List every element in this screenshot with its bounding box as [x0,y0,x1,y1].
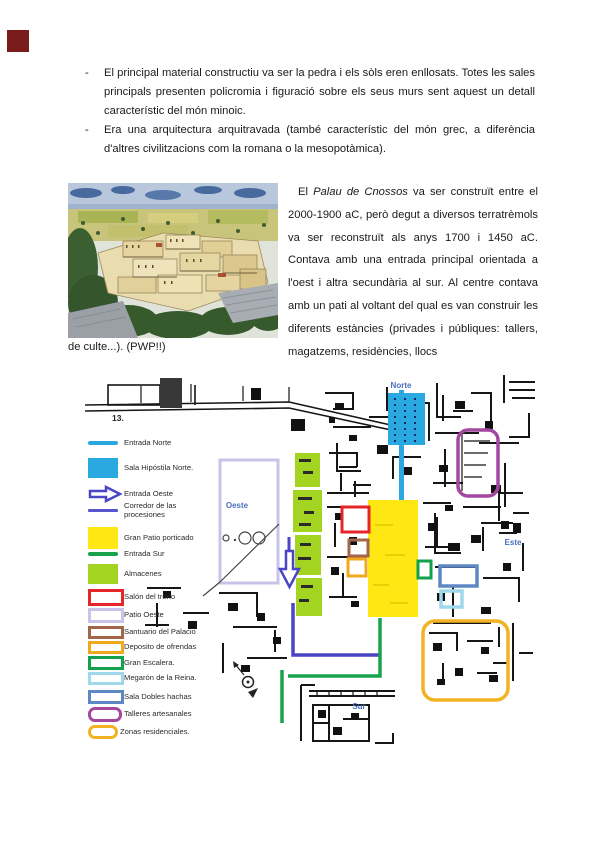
salon-del-trono-area [342,507,369,532]
entrada-norte-swatch [88,441,118,445]
legend-item: Gran Escalera. [88,656,238,670]
talleres-swatch [88,707,122,722]
legend-item: Zonas residenciales. [88,725,238,739]
legend-item: Corredor de las procesiones [88,502,238,519]
patio-oeste-swatch [88,608,124,623]
deposito-swatch [88,641,124,654]
legend-item: Almacenes [88,564,238,584]
map-figure: Norte Este Sur Oeste 13. Entrada Norte S… [85,375,535,765]
list-item: - El principal material constructiu va s… [85,64,535,121]
legend-item: Talleres artesanales [88,707,238,722]
gran-patio-area [368,500,418,617]
deposito-ofrendas-area [348,559,366,576]
entrada-sur-swatch [88,552,118,556]
legend-item: Patio Oeste [88,608,238,623]
legend-item: Salón del trono [88,589,238,606]
body-paragraph: El Palau de Cnossos va ser construït ent… [288,181,538,363]
sala-hipostila-norte-area [388,393,425,445]
paragraph-italic-title: Palau de Cnossos [313,186,408,198]
map-label-este: Este [505,538,522,547]
bullet-marker: - [85,121,104,159]
bullet-text: Era una arquitectura arquitravada (també… [104,121,535,159]
map-label-norte: Norte [391,381,412,390]
entrada-oeste-arrow-swatch [88,485,122,503]
legend-item: Entrada Norte [88,439,238,448]
legend-item: Santuario del Palacio [88,626,238,639]
santuario-swatch [88,626,124,639]
megaron-swatch [88,672,124,685]
legend-item: Entrada Sur [88,550,238,559]
dobles-hachas-swatch [88,690,124,704]
document-page: - El principal material constructiu va s… [0,0,600,848]
paragraph-lead: El [298,186,313,198]
knossos-aerial-image [68,183,278,338]
sala-dobles-hachas-area [440,566,477,586]
corredor-swatch [88,509,118,512]
paragraph-rest: va ser construït entre el 2000-1900 aC, … [288,186,538,358]
legend-number: 13. [112,413,124,423]
almacenes-area [293,453,322,616]
bullet-list: - El principal material constructiu va s… [85,64,535,159]
gran-escalera-area [418,561,431,578]
bullet-text: El principal material constructiu va ser… [104,64,535,121]
bullet-marker: - [85,64,104,121]
map-label-sur: Sur [352,702,365,711]
zonas-residenciales-swatch [88,725,118,739]
gran-patio-swatch [88,527,118,549]
page-corner-mark [7,30,29,52]
map-legend: 13. Entrada Norte Sala Hipóstila Norte. … [87,375,247,765]
salon-trono-swatch [88,589,124,606]
legend-item: Deposito de ofrendas [88,641,238,654]
paragraph-continuation: de culte...). (PWP!!) [68,338,318,357]
list-item: - Era una arquitectura arquitravada (tam… [85,121,535,159]
gran-escalera-swatch [88,656,124,670]
legend-item: Gran Patio porticado [88,527,238,549]
legend-item: Megarón de la Reina. [88,672,238,685]
legend-item: Sala Dobles hachas [88,690,238,704]
legend-item: Sala Hipóstila Norte. [88,458,238,478]
almacenes-swatch [88,564,118,584]
sala-hipostila-swatch [88,458,118,478]
